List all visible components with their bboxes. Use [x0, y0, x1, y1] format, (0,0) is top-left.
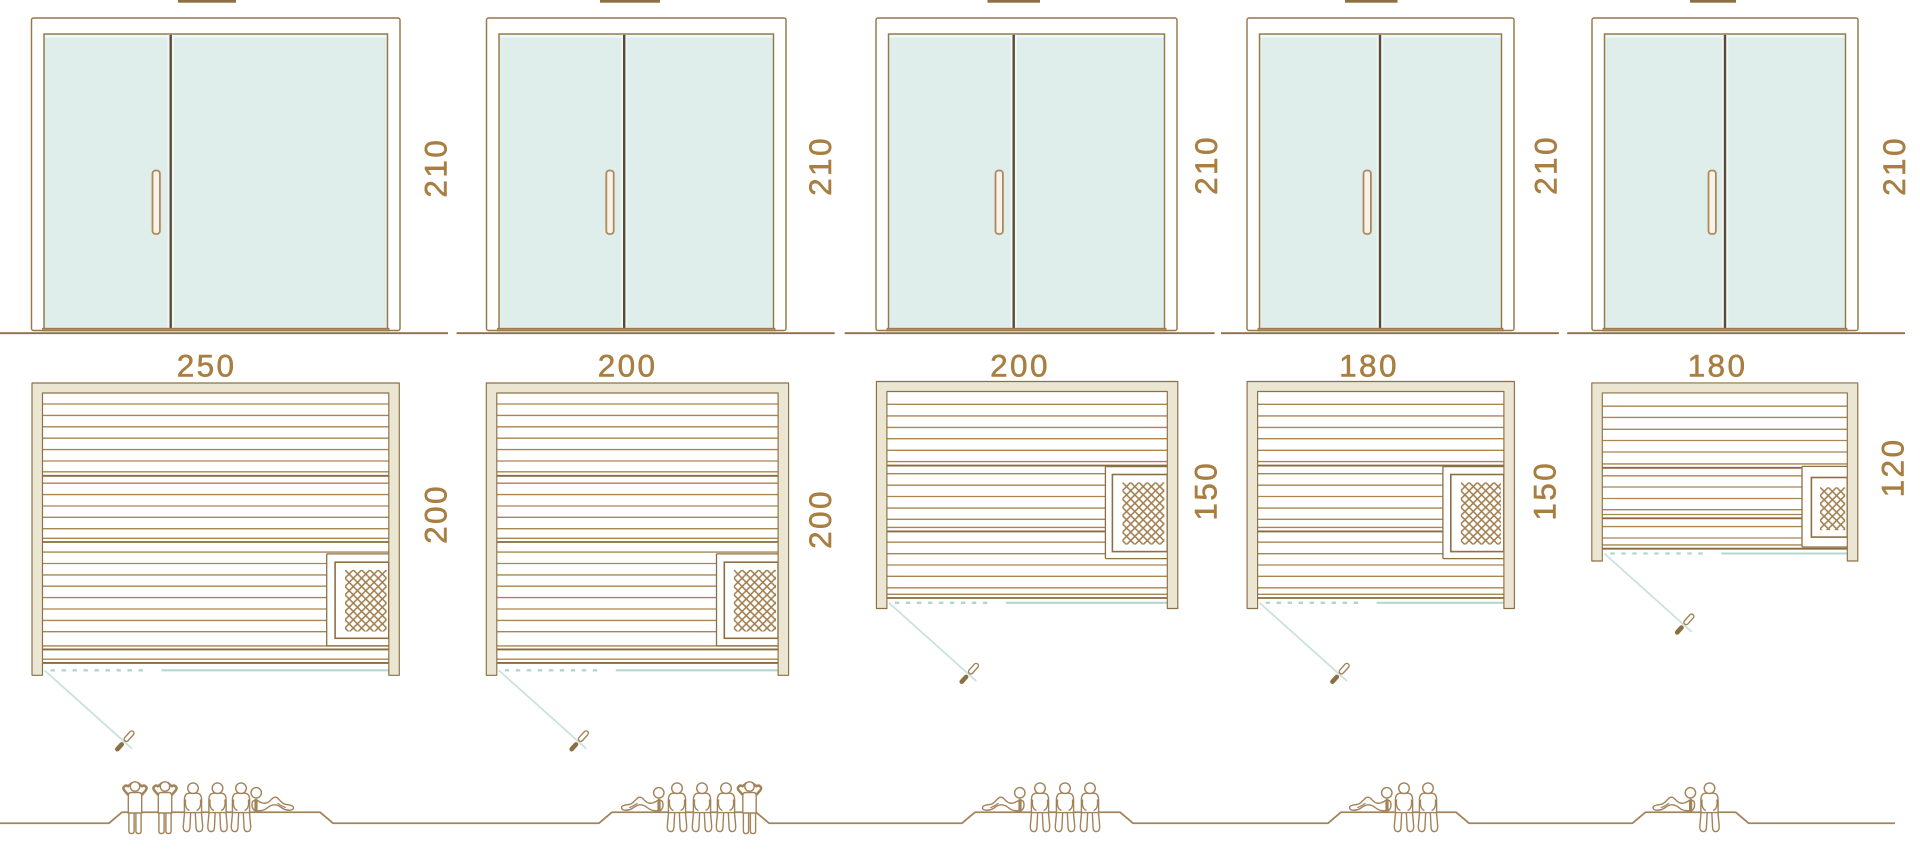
svg-text:210: 210 — [802, 136, 838, 196]
svg-text:210: 210 — [1876, 136, 1912, 196]
svg-text:200: 200 — [598, 347, 658, 383]
svg-text:150: 150 — [1527, 461, 1563, 521]
svg-text:200: 200 — [802, 489, 838, 549]
svg-text:200: 200 — [990, 347, 1050, 383]
svg-text:250: 250 — [177, 347, 237, 383]
svg-text:120: 120 — [1875, 438, 1911, 498]
svg-text:210: 210 — [417, 138, 453, 198]
svg-text:180: 180 — [1688, 347, 1748, 383]
svg-text:200: 200 — [418, 484, 454, 544]
svg-text:150: 150 — [1188, 461, 1224, 521]
svg-text:180: 180 — [1339, 347, 1399, 383]
svg-text:210: 210 — [1528, 135, 1564, 195]
svg-text:210: 210 — [1188, 135, 1224, 195]
